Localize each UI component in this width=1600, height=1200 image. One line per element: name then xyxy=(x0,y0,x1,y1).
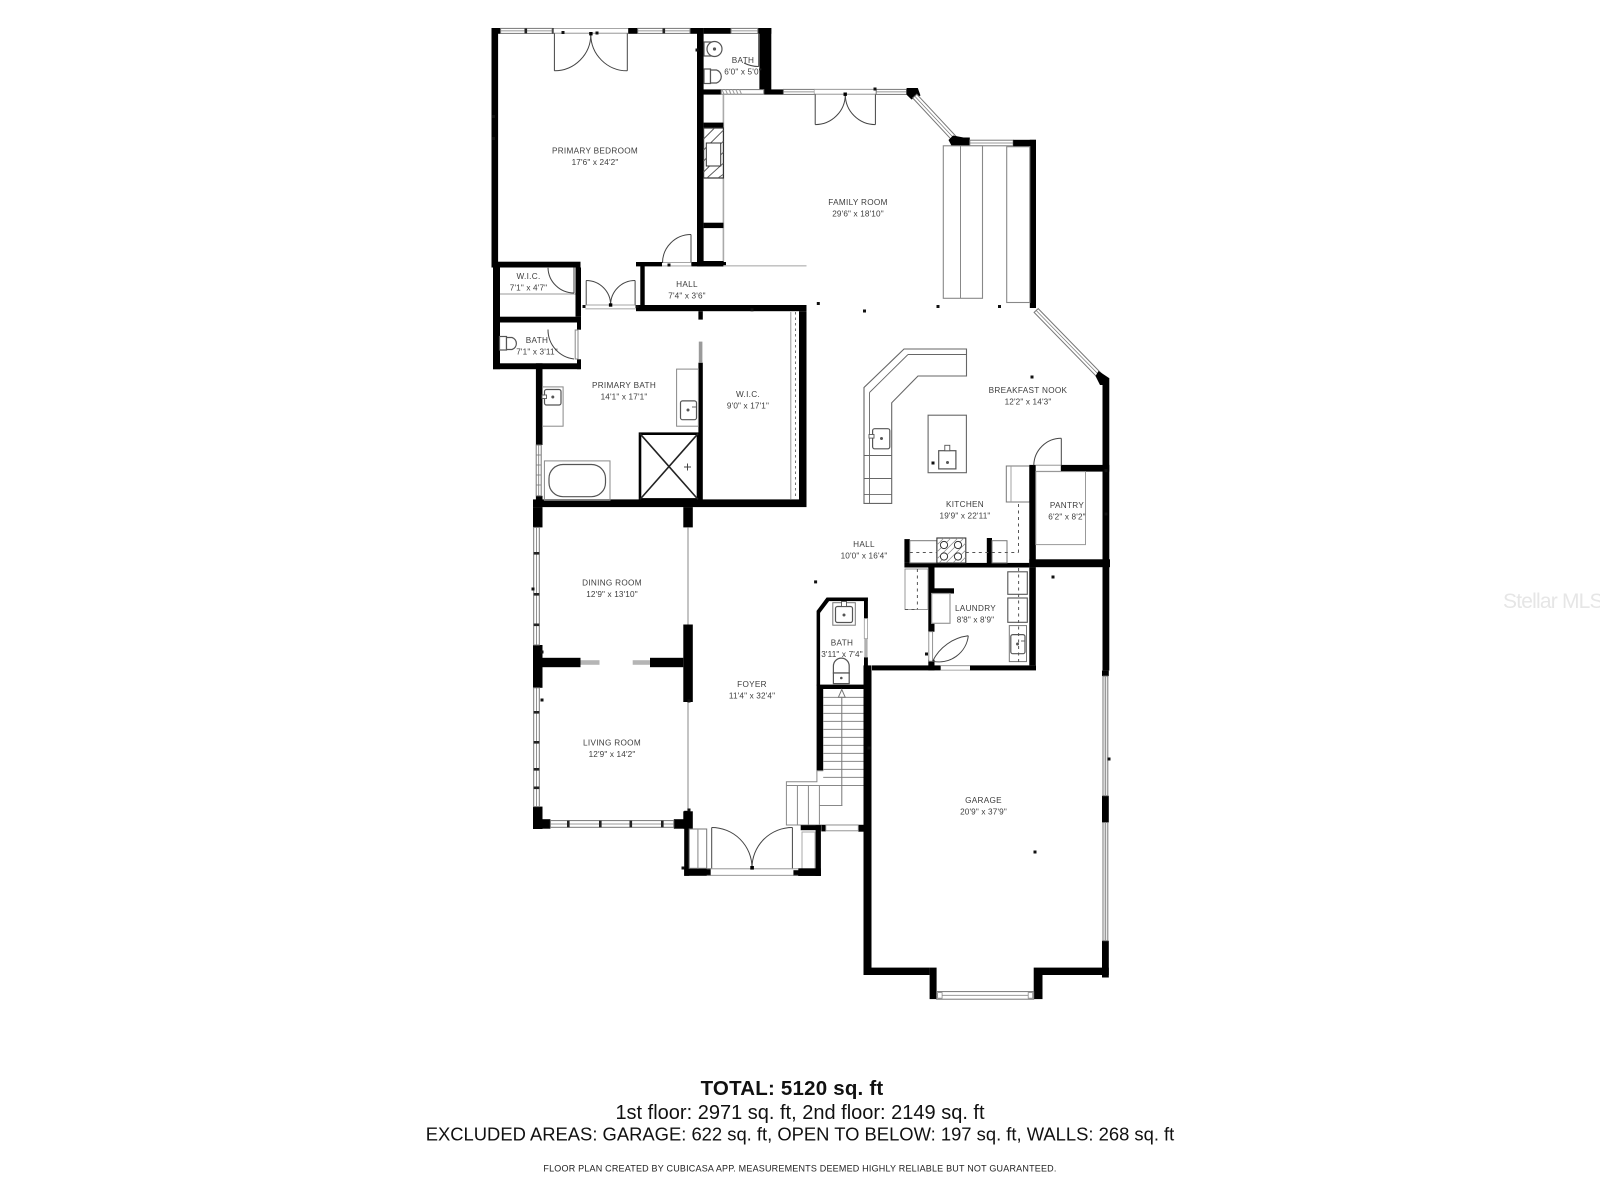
svg-text:FOYER: FOYER xyxy=(737,680,767,689)
svg-text:LIVING ROOM: LIVING ROOM xyxy=(583,739,641,748)
svg-text:PANTRY: PANTRY xyxy=(1050,501,1084,510)
svg-text:TOTAL: 5120 sq. ft: TOTAL: 5120 sq. ft xyxy=(701,1077,884,1100)
svg-text:BREAKFAST NOOK: BREAKFAST NOOK xyxy=(989,386,1068,395)
svg-text:DINING ROOM: DINING ROOM xyxy=(582,579,642,588)
svg-text:29'6" x 18'10": 29'6" x 18'10" xyxy=(832,210,884,219)
svg-text:12'9" x 13'10": 12'9" x 13'10" xyxy=(586,590,638,599)
svg-text:19'9" x 22'11": 19'9" x 22'11" xyxy=(940,512,991,521)
svg-text:Stellar MLS: Stellar MLS xyxy=(1503,590,1600,613)
svg-text:PRIMARY BEDROOM: PRIMARY BEDROOM xyxy=(552,147,638,156)
svg-text:6'2" x 8'2": 6'2" x 8'2" xyxy=(1048,513,1085,522)
svg-text:8'8" x 8'9": 8'8" x 8'9" xyxy=(957,616,994,625)
svg-text:HALL: HALL xyxy=(676,280,698,289)
svg-text:LAUNDRY: LAUNDRY xyxy=(955,604,996,613)
svg-text:3'11" x 7'4": 3'11" x 7'4" xyxy=(821,650,863,659)
svg-text:14'1" x 17'1": 14'1" x 17'1" xyxy=(601,393,648,402)
svg-text:HALL: HALL xyxy=(853,540,875,549)
svg-text:10'0" x 16'4": 10'0" x 16'4" xyxy=(841,552,888,561)
svg-text:BATH: BATH xyxy=(526,336,548,345)
svg-text:FAMILY ROOM: FAMILY ROOM xyxy=(828,198,887,207)
svg-text:7'1" x 4'7": 7'1" x 4'7" xyxy=(510,284,547,293)
svg-text:BATH: BATH xyxy=(732,56,754,65)
svg-text:11'4" x 32'4": 11'4" x 32'4" xyxy=(729,692,775,701)
svg-text:KITCHEN: KITCHEN xyxy=(946,500,984,509)
svg-text:EXCLUDED AREAS: GARAGE: 622 sq: EXCLUDED AREAS: GARAGE: 622 sq. ft, OPEN… xyxy=(426,1124,1175,1145)
svg-text:BATH: BATH xyxy=(831,639,853,648)
svg-text:W.I.C.: W.I.C. xyxy=(516,272,540,281)
svg-text:7'1" x 3'11": 7'1" x 3'11" xyxy=(516,348,558,357)
svg-text:7'4" x 3'6": 7'4" x 3'6" xyxy=(668,292,705,301)
svg-text:1st floor: 2971 sq. ft, 2nd fl: 1st floor: 2971 sq. ft, 2nd floor: 2149 … xyxy=(615,1102,985,1124)
svg-text:20'9" x 37'9": 20'9" x 37'9" xyxy=(960,808,1007,817)
svg-text:12'9" x 14'2": 12'9" x 14'2" xyxy=(589,750,636,759)
svg-text:12'2" x 14'3": 12'2" x 14'3" xyxy=(1005,398,1052,407)
svg-text:17'6" x 24'2": 17'6" x 24'2" xyxy=(572,158,619,167)
svg-text:9'0" x 17'1": 9'0" x 17'1" xyxy=(727,402,769,411)
svg-text:GARAGE: GARAGE xyxy=(965,796,1002,805)
svg-text:6'0" x 5'0": 6'0" x 5'0" xyxy=(724,68,761,77)
svg-text:PRIMARY BATH: PRIMARY BATH xyxy=(592,381,656,390)
svg-text:FLOOR PLAN CREATED BY CUBICASA: FLOOR PLAN CREATED BY CUBICASA APP. MEAS… xyxy=(543,1164,1056,1174)
svg-text:W.I.C.: W.I.C. xyxy=(736,390,760,399)
